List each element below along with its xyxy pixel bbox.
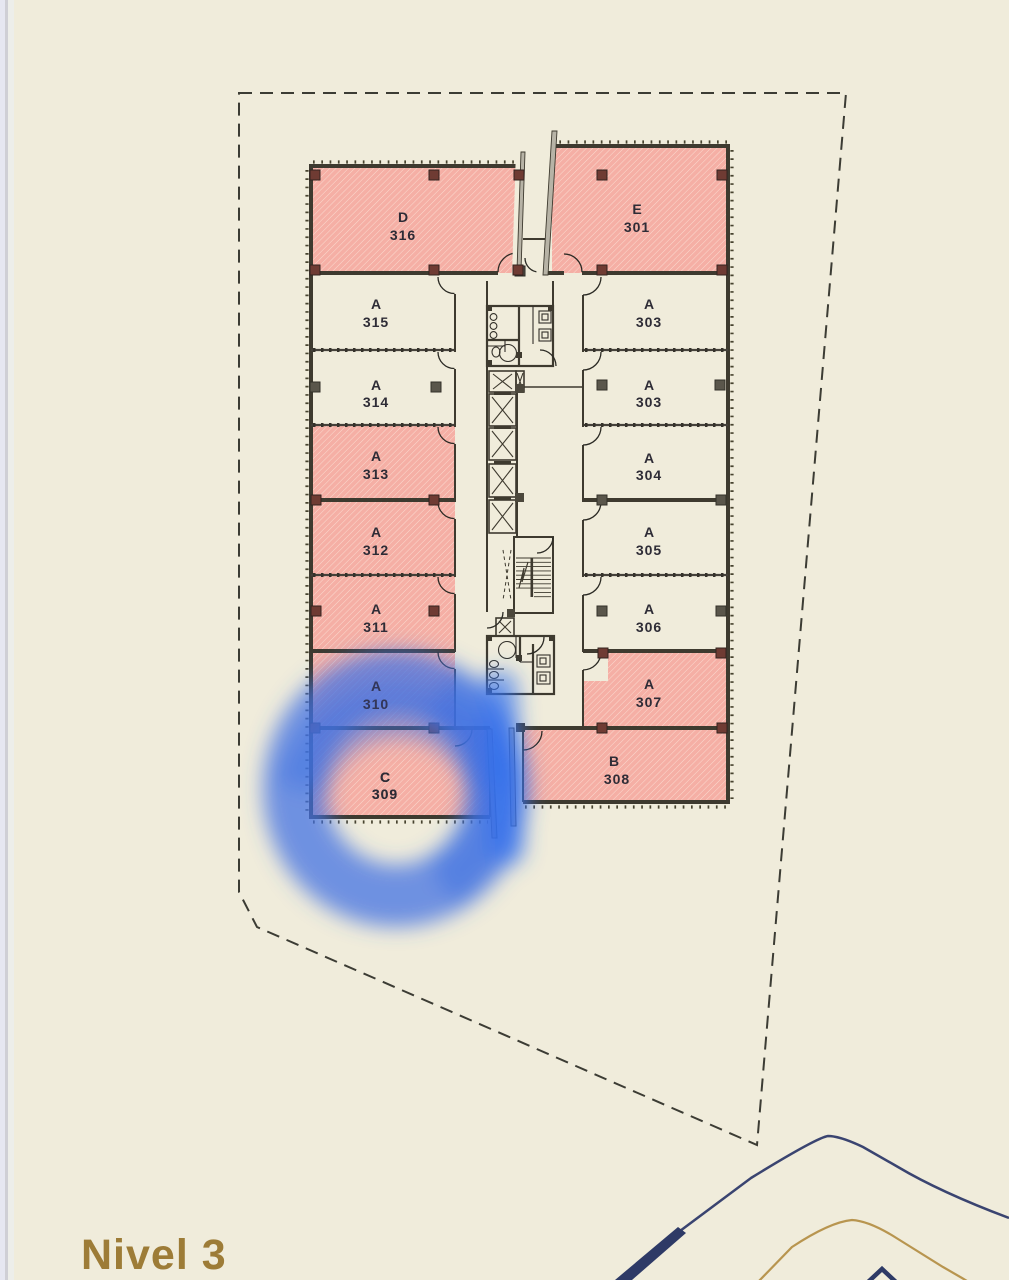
svg-text:308: 308 — [604, 771, 630, 787]
svg-text:A: A — [371, 377, 381, 393]
svg-text:A: A — [644, 296, 654, 312]
svg-text:A: A — [644, 676, 654, 692]
svg-text:A: A — [371, 296, 381, 312]
svg-text:306: 306 — [636, 619, 662, 635]
svg-text:305: 305 — [636, 542, 662, 558]
svg-text:A: A — [371, 448, 381, 464]
svg-text:313: 313 — [363, 466, 389, 482]
svg-text:303: 303 — [636, 314, 662, 330]
svg-text:314: 314 — [363, 394, 389, 410]
svg-text:B: B — [609, 753, 619, 769]
svg-text:301: 301 — [624, 219, 650, 235]
svg-text:E: E — [632, 201, 641, 217]
svg-text:Nivel 3: Nivel 3 — [81, 1231, 227, 1279]
svg-text:315: 315 — [363, 314, 389, 330]
svg-text:A: A — [644, 450, 654, 466]
svg-text:307: 307 — [636, 694, 662, 710]
svg-text:A: A — [644, 601, 654, 617]
svg-text:A: A — [644, 524, 654, 540]
svg-text:316: 316 — [390, 227, 416, 243]
svg-text:309: 309 — [372, 786, 398, 802]
svg-text:D: D — [398, 209, 408, 225]
svg-text:A: A — [644, 377, 654, 393]
svg-text:311: 311 — [363, 619, 389, 635]
svg-text:C: C — [380, 769, 390, 785]
svg-text:A: A — [371, 601, 381, 617]
svg-text:304: 304 — [636, 467, 662, 483]
svg-text:303: 303 — [636, 394, 662, 410]
svg-text:312: 312 — [363, 542, 389, 558]
svg-text:A: A — [371, 524, 381, 540]
svg-text:A: A — [371, 678, 381, 694]
svg-text:310: 310 — [363, 696, 389, 712]
